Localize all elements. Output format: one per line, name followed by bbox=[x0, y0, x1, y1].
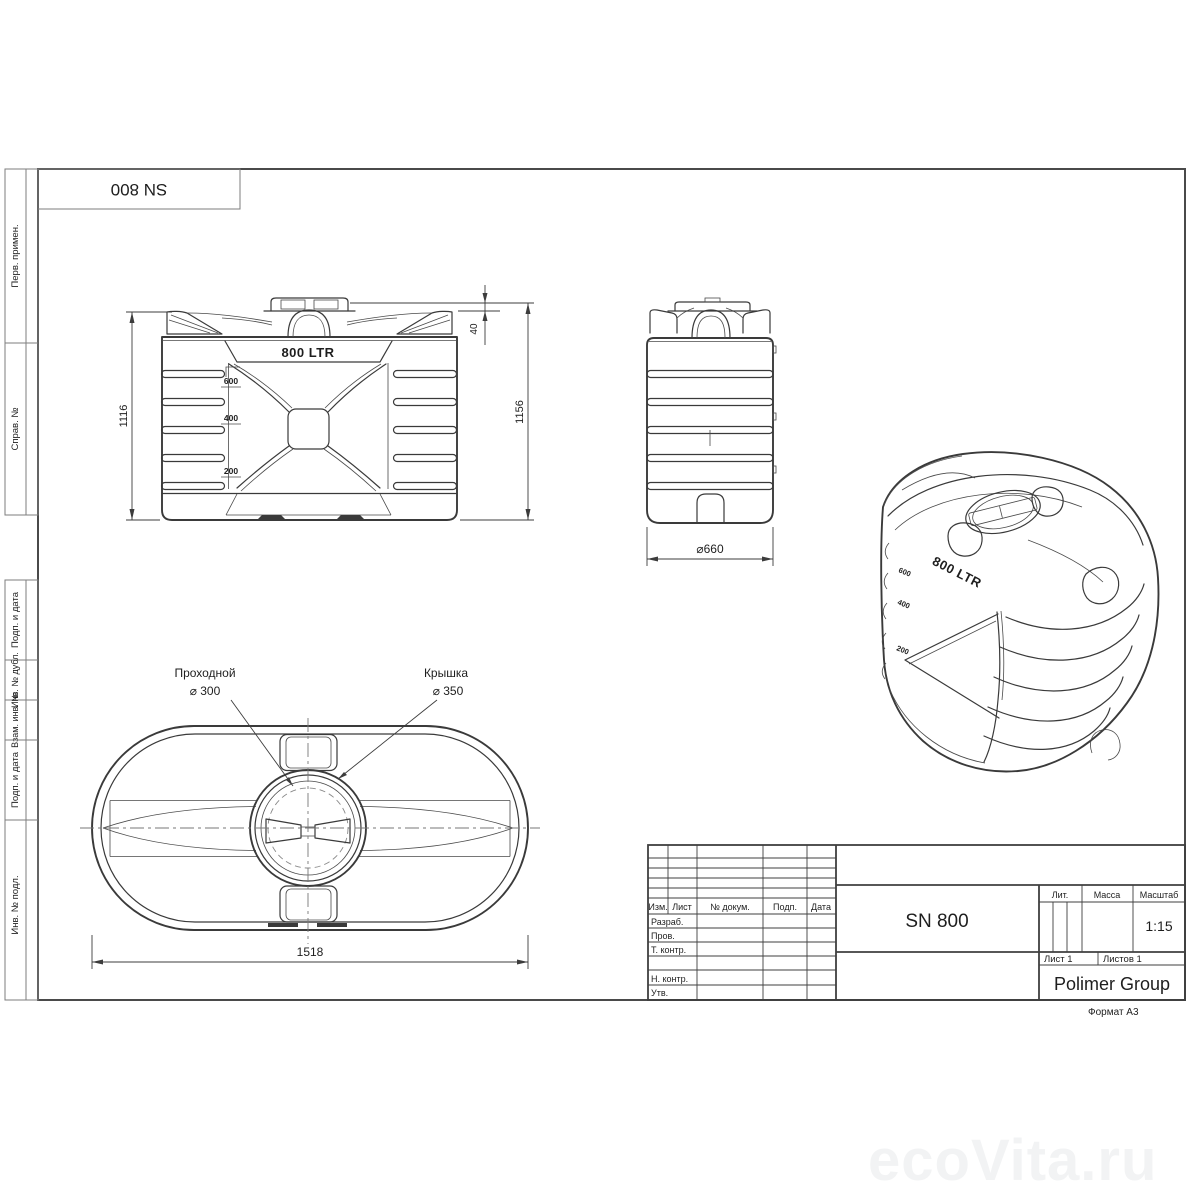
drawing-canvas: ecoVita.ru SN 800 Перв. примен. Справ. №… bbox=[0, 0, 1204, 1204]
role-t-kontr: Т. контр. bbox=[651, 945, 686, 955]
iso-level-200: 200 bbox=[895, 644, 910, 657]
iso-level-400: 400 bbox=[896, 598, 911, 611]
callout-inlet-name: Проходной bbox=[174, 666, 235, 680]
top-dim-1518-text: 1518 bbox=[297, 945, 324, 959]
callout-lid-name: Крышка bbox=[424, 666, 468, 680]
margin-label-sprav-no: Справ. № bbox=[10, 407, 21, 450]
front-level-400: 400 bbox=[224, 413, 238, 423]
front-level-600: 600 bbox=[224, 376, 238, 386]
sheet-info: Лист 1 bbox=[1044, 954, 1073, 965]
role-n-kontr: Н. контр. bbox=[651, 974, 688, 984]
margin-label-perv-primen: Перв. примен. bbox=[10, 224, 21, 287]
rev-col-docnum: № докум. bbox=[710, 902, 750, 912]
front-view: 800 LTR 600 400 200 bbox=[118, 285, 534, 520]
watermark: ecoVita.ru bbox=[868, 1128, 1157, 1193]
margin-label-podp-data-1: Подп. и дата bbox=[10, 591, 21, 648]
margin-label-podp-data-2: Подп. и дата bbox=[10, 751, 21, 808]
callout-inlet-dia: ⌀ 300 bbox=[190, 684, 221, 698]
rev-col-izm: Изм. bbox=[648, 902, 667, 912]
front-dim-40-text: 40 bbox=[469, 323, 480, 335]
designation-box: SN 800 bbox=[38, 169, 240, 209]
margin-label-vzam-inv-no: Взам. инв. № bbox=[10, 692, 20, 748]
iso-level-marks: 600 400 200 bbox=[895, 566, 912, 657]
top-dim-1518: 1518 bbox=[92, 935, 528, 969]
front-ribs-right bbox=[394, 371, 457, 490]
part-name: SN 800 bbox=[905, 911, 968, 932]
front-capacity-label: 800 LTR bbox=[281, 345, 334, 360]
front-ribs-left bbox=[162, 371, 225, 490]
front-dim-1156-text: 1156 bbox=[514, 400, 526, 424]
rev-col-podp: Подп. bbox=[773, 902, 797, 912]
margin-label-inv-no-podl: Инв. № подл. bbox=[10, 875, 21, 934]
front-dim-40: 40 bbox=[458, 285, 500, 345]
front-level-200: 200 bbox=[224, 466, 238, 476]
front-dim-1156: 1156 bbox=[350, 303, 534, 520]
sheets-info: Листов 1 bbox=[1103, 954, 1142, 965]
company-name: Polimer Group bbox=[1054, 974, 1170, 994]
sheet-frame bbox=[38, 169, 1185, 1000]
format-note: Формат А3 bbox=[1088, 1007, 1139, 1018]
iso-ribs bbox=[984, 584, 1144, 749]
iso-level-600: 600 bbox=[897, 566, 912, 579]
mass-label: Масса bbox=[1094, 890, 1121, 900]
iso-lid bbox=[961, 483, 1044, 540]
top-view: Проходной ⌀ 300 Крышка ⌀ 350 1518 bbox=[80, 666, 540, 969]
side-dim-660-text: ⌀660 bbox=[696, 542, 724, 556]
iso-view: 800 LTR 600 400 200 bbox=[881, 452, 1158, 771]
designation-flipped-text: SN 800 bbox=[111, 180, 168, 199]
front-dim-1116-text: 1116 bbox=[118, 405, 130, 428]
role-prov: Пров. bbox=[651, 931, 675, 941]
side-view: ⌀660 bbox=[647, 298, 776, 566]
margin-column: Перв. примен. Справ. № Подп. и дата Инв.… bbox=[5, 169, 38, 1000]
callout-lid: Крышка ⌀ 350 bbox=[338, 666, 468, 779]
title-block: Изм. Лист № докум. Подп. Дата Разраб. Пр… bbox=[648, 845, 1185, 1000]
side-dim-660: ⌀660 bbox=[647, 527, 773, 566]
role-razrab: Разраб. bbox=[651, 917, 683, 927]
rev-col-list: Лист bbox=[672, 902, 692, 912]
rev-col-data: Дата bbox=[811, 902, 831, 912]
callout-lid-dia: ⌀ 350 bbox=[433, 684, 464, 698]
role-utv: Утв. bbox=[651, 988, 668, 998]
iso-capacity-label: 800 LTR bbox=[930, 553, 984, 591]
drawing-sheet: ecoVita.ru SN 800 Перв. примен. Справ. №… bbox=[0, 0, 1204, 1204]
scale-label: Масштаб bbox=[1140, 890, 1179, 900]
scale-value: 1:15 bbox=[1145, 918, 1172, 934]
lit-label: Лит. bbox=[1052, 890, 1069, 900]
